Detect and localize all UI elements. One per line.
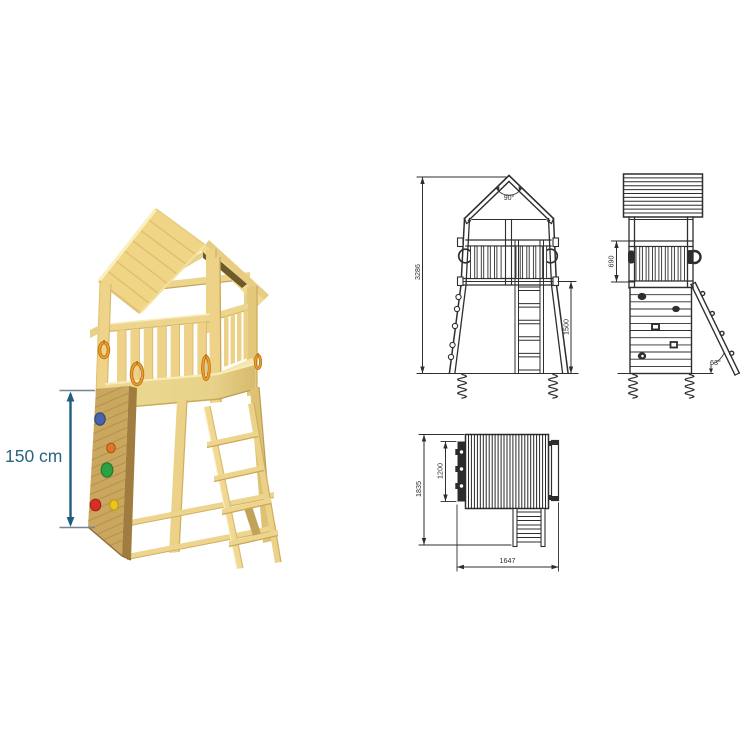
svg-text:3286: 3286 — [413, 264, 422, 280]
svg-text:1500: 1500 — [562, 319, 571, 335]
svg-text:150 cm: 150 cm — [5, 446, 62, 466]
svg-text:690: 690 — [607, 256, 616, 268]
svg-text:1200: 1200 — [436, 463, 445, 479]
svg-text:1647: 1647 — [500, 556, 516, 565]
svg-text:1835: 1835 — [414, 481, 423, 497]
svg-text:90°: 90° — [504, 194, 515, 202]
